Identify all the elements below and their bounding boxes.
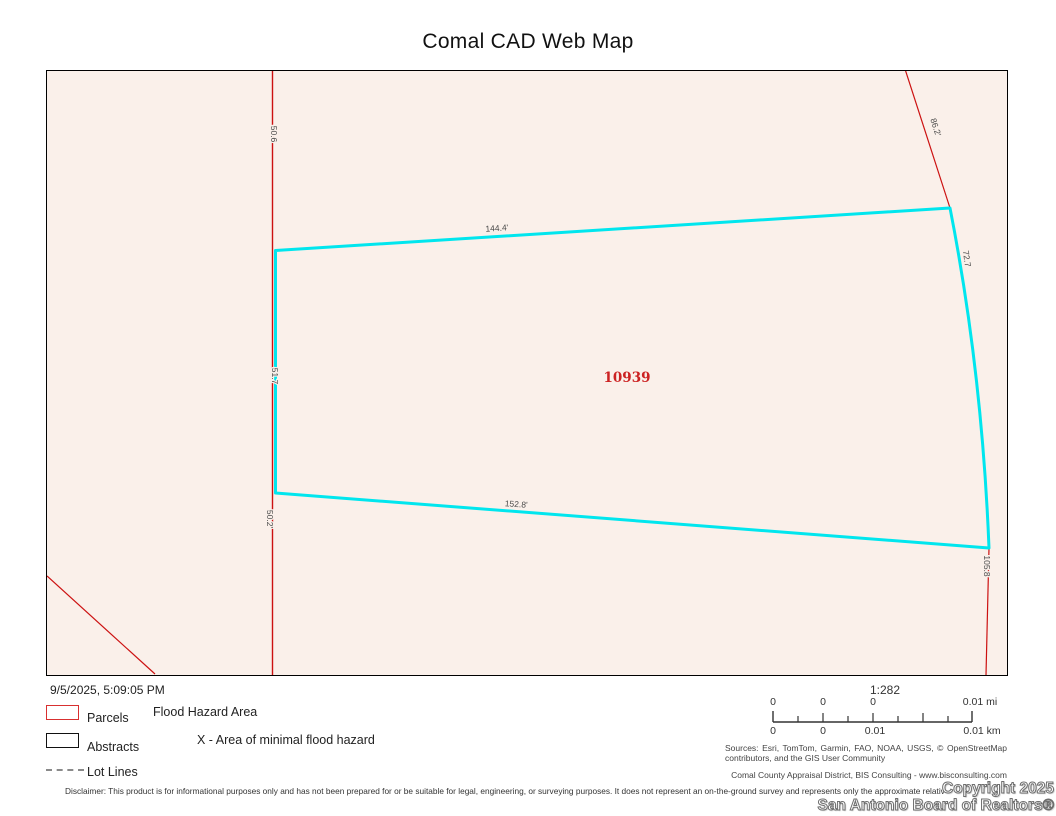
- scale-bottom-tick-3: 0.01 km: [963, 725, 1000, 737]
- scale-bottom-tick-2: 0.01: [865, 725, 885, 737]
- dim-label-top-edge: 144.4': [485, 222, 509, 233]
- page: Comal CAD Web Map 144.4' 152.8' 50.6 51.…: [0, 0, 1056, 816]
- scale-top-tick-0: 0: [770, 696, 776, 708]
- legend-item-lot-lines: Lot Lines: [87, 765, 138, 779]
- timestamp: 9/5/2025, 5:09:05 PM: [50, 683, 165, 697]
- legend-item-abstracts: Abstracts: [87, 740, 139, 754]
- dim-label-left-middle: 51.7: [270, 368, 280, 385]
- copyright-watermark: Copyright 2025 San Antonio Board of Real…: [818, 780, 1054, 814]
- scale-top-tick-1: 0: [820, 696, 826, 708]
- parcel-line-top-right-diagonal: [905, 71, 950, 208]
- dim-label-bottom-edge: 152.8': [504, 498, 528, 510]
- map-footer: 9/5/2025, 5:09:05 PM Parcels Abstracts L…: [0, 675, 1056, 816]
- parcel-line-bottom-left-diagonal: [47, 576, 155, 674]
- parcels-swatch: [46, 705, 79, 720]
- scale-bottom-tick-0: 0: [770, 725, 776, 737]
- scale-bottom-tick-1: 0: [820, 725, 826, 737]
- sources-credit: Sources: Esri, TomTom, Garmin, FAO, NOAA…: [725, 744, 1007, 763]
- scale-top-tick-2: 0: [870, 696, 876, 708]
- scale-bar: [765, 709, 1005, 725]
- dim-label-left-lower: 50.2': [265, 510, 275, 529]
- dim-label-right-upper: 86.2': [928, 117, 943, 138]
- page-title: Comal CAD Web Map: [0, 30, 1056, 54]
- lot-lines-swatch: [46, 769, 84, 771]
- flood-hazard-item: X - Area of minimal flood hazard: [197, 733, 375, 747]
- abstracts-swatch: [46, 733, 79, 748]
- scale-top-tick-3: 0.01 mi: [963, 696, 997, 708]
- scale-ratio: 1:282: [765, 683, 1005, 697]
- parcel-id-label: 10939: [604, 370, 651, 386]
- dim-label-left-upper: 50.6: [269, 126, 279, 143]
- map-viewport: 144.4' 152.8' 50.6 51.7 50.2' 86.2' 72.7…: [46, 70, 1008, 676]
- disclaimer-text: Disclaimer: This product is for informat…: [65, 786, 945, 796]
- district-attribution: Comal County Appraisal District, BIS Con…: [725, 770, 1007, 780]
- dim-label-right-edge: 72.7: [961, 250, 973, 268]
- flood-hazard-heading: Flood Hazard Area: [153, 705, 257, 719]
- watermark-line1: Copyright 2025: [818, 780, 1054, 797]
- legend-item-parcels: Parcels: [87, 711, 129, 725]
- dim-label-right-lower: 105.8: [982, 555, 992, 577]
- map-canvas: 144.4' 152.8' 50.6 51.7 50.2' 86.2' 72.7…: [47, 71, 1007, 675]
- watermark-line2: San Antonio Board of Realtors®: [818, 797, 1054, 814]
